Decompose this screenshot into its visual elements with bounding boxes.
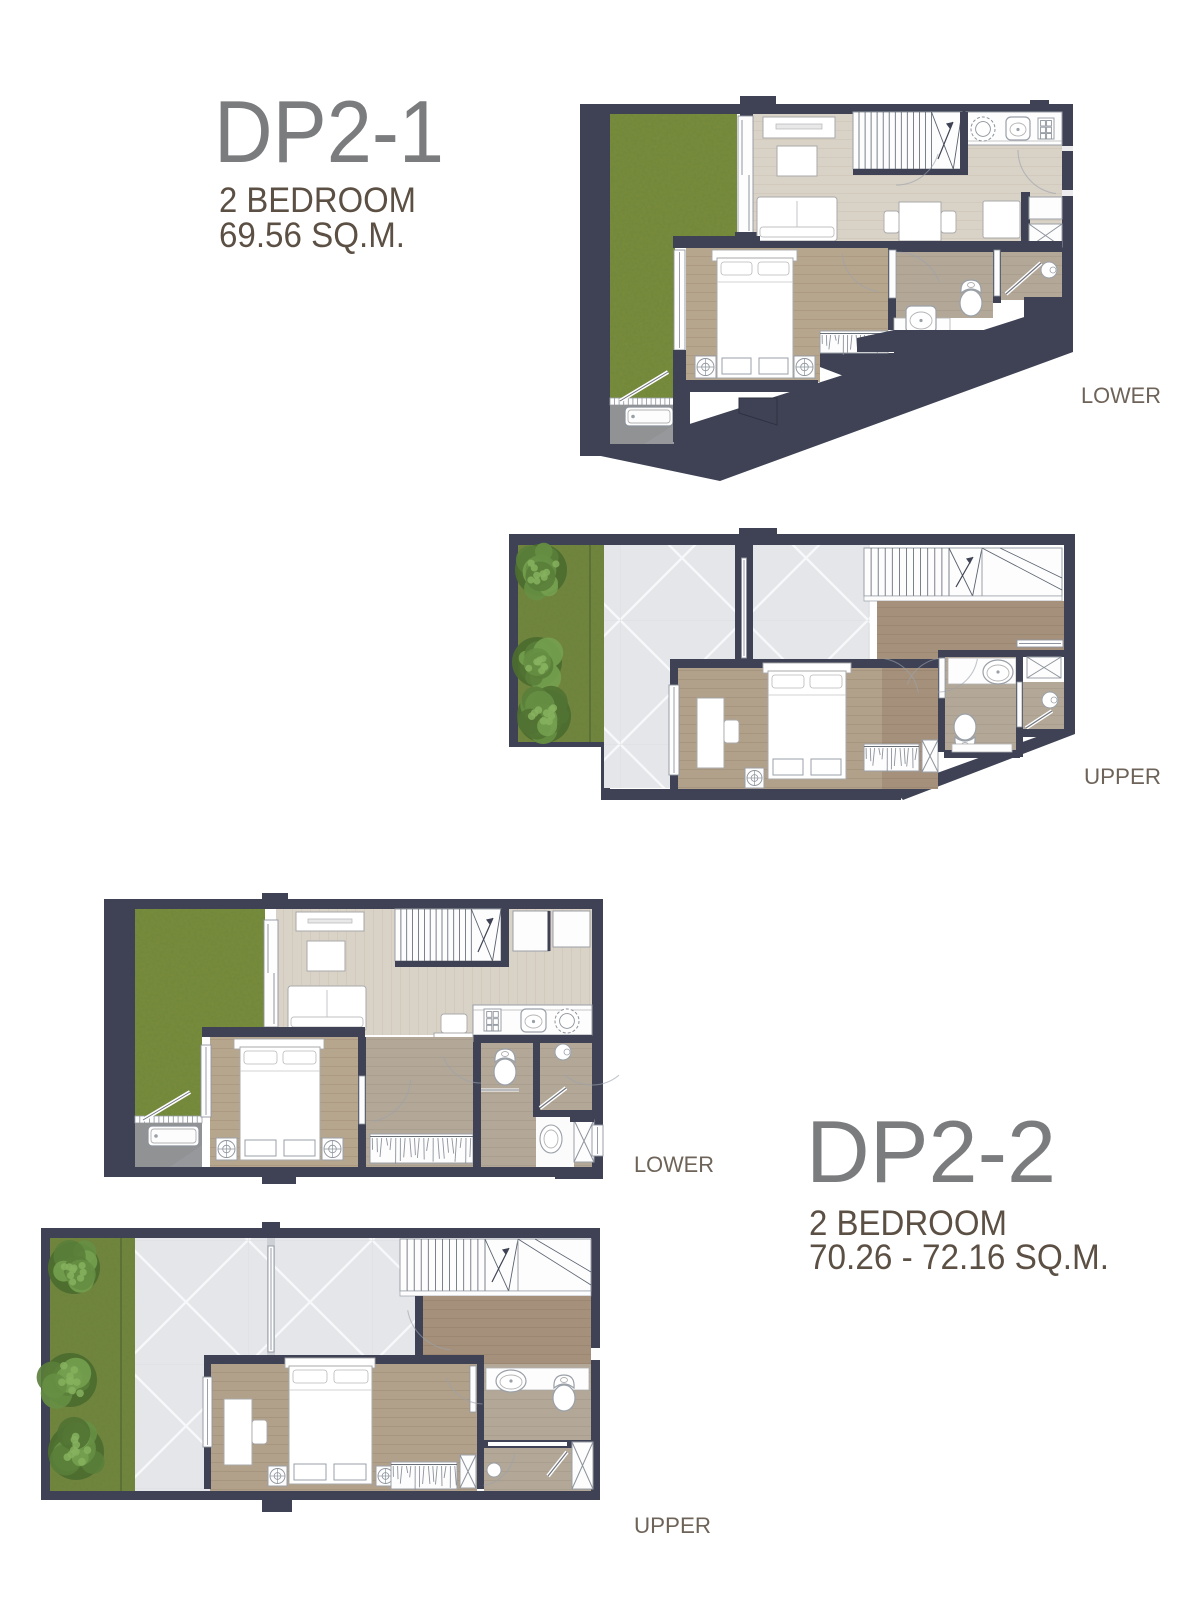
svg-text:DP2-2: DP2-2 [806, 1102, 1056, 1201]
svg-text:LOWER: LOWER [1081, 383, 1161, 408]
svg-text:LOWER: LOWER [634, 1152, 714, 1177]
svg-text:2 BEDROOM: 2 BEDROOM [219, 181, 416, 220]
svg-text:69.56 SQ.M.: 69.56 SQ.M. [219, 216, 405, 255]
svg-text:70.26 - 72.16 SQ.M.: 70.26 - 72.16 SQ.M. [809, 1238, 1109, 1277]
svg-text:UPPER: UPPER [1084, 764, 1161, 789]
svg-text:DP2-1: DP2-1 [214, 82, 444, 181]
svg-text:UPPER: UPPER [634, 1513, 711, 1538]
